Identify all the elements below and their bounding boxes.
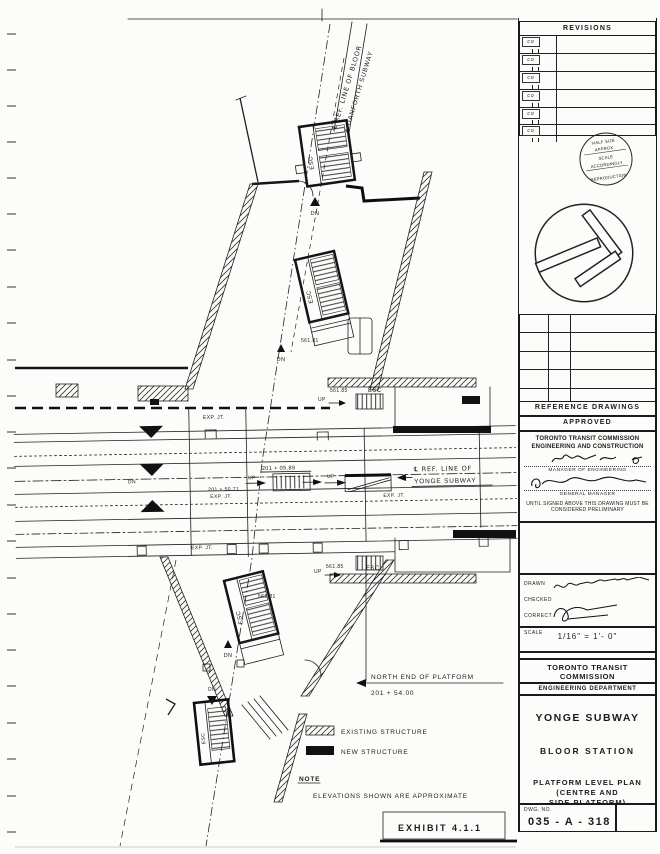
- stamp-line: REPRODUCTION: [590, 172, 627, 182]
- north-end-structures: 561.85 UP ESC: [318, 378, 491, 433]
- exp-jt-label: EXP. JT.: [383, 493, 405, 499]
- dwg-number: 035 - A - 318: [528, 816, 611, 828]
- note-label: NOTE: [299, 776, 320, 783]
- general-manager-role-label: GENERAL MANAGER: [520, 492, 655, 497]
- approved-header: APPROVED: [519, 416, 656, 431]
- dwg-no-label: DWG. NO.: [524, 807, 552, 813]
- reference-drawings-header: REFERENCE DRAWINGS: [519, 401, 656, 416]
- down-arrow-icon: [310, 197, 320, 206]
- legend-existing-swatch: [306, 726, 334, 735]
- esc-label: ESC: [366, 566, 380, 572]
- general-manager-signature: [524, 474, 654, 489]
- west-structures: EXP. JT.: [15, 368, 330, 421]
- north-end-label: NORTH END OF PLATFORM: [371, 674, 474, 681]
- elevation-label: 561.81: [258, 594, 276, 600]
- dwg-cell-divider: [615, 805, 617, 831]
- elevation-label: 561.81: [301, 338, 319, 344]
- spacer-box: [519, 652, 656, 659]
- revision-row: co: [520, 54, 655, 72]
- revision-mark: co: [522, 109, 540, 119]
- empty-box: [519, 522, 656, 574]
- drawing-sheet: ℄ REF. LINE OF BLOOR & DANFORTH SUBWAY E…: [0, 0, 660, 854]
- exp-jt-label: EXP. JT.: [191, 545, 213, 551]
- approved-disclaimer-line2: CONSIDERED PRELIMINARY: [520, 507, 655, 513]
- title-line-centre: (CENTRE AND: [520, 788, 655, 798]
- drawing-title-block: YONGE SUBWAY BLOOR STATION PLATFORM LEVE…: [519, 695, 656, 804]
- leader-arrow-icon: [356, 679, 366, 687]
- new-structure-wall: [453, 530, 516, 538]
- leader-arrow-icon: [397, 474, 406, 481]
- drawn-signature: [550, 577, 655, 592]
- title-line-station: BLOOR STATION: [520, 746, 655, 756]
- legend: EXISTING STRUCTURE NEW STRUCTURE NOTE EL…: [298, 726, 517, 841]
- revision-mark: co: [522, 91, 540, 101]
- approved-org-line2: ENGINEERING AND CONSTRUCTION: [520, 443, 655, 451]
- note-text: ELEVATIONS SHOWN ARE APPROXIMATE: [313, 793, 468, 800]
- title-line-plan: PLATFORM LEVEL PLAN: [520, 778, 655, 788]
- revision-row: co: [520, 36, 655, 54]
- south-end-structures: 561.85 UP ESC: [314, 530, 516, 583]
- elevation-label: 561.85: [330, 388, 348, 394]
- reference-rows: [519, 314, 656, 401]
- revision-mark: co: [522, 73, 540, 83]
- legend-existing-label: EXISTING STRUCTURE: [341, 729, 428, 736]
- yonge-ref-line-label: ℄ REF. LINE OF: [414, 464, 472, 473]
- escalator-top: ESC: [290, 119, 364, 188]
- down-arrow-icon: [224, 640, 232, 648]
- drawn-label: DRAWN: [524, 581, 545, 587]
- revision-row: co: [520, 108, 655, 126]
- dn-label: DN: [128, 479, 136, 485]
- station-chainage-label: 201 + 50.71: [208, 486, 239, 493]
- scale-block: SCALE 1/16" = 1'- 0": [519, 627, 656, 652]
- south-concourse-walls: [160, 557, 394, 802]
- train-direction-arrow: [140, 464, 164, 476]
- north-arrow: [531, 200, 637, 306]
- door-swing-arc: [299, 181, 313, 196]
- exp-jt-label: EXP. JT.: [210, 494, 232, 500]
- matchline-ticks: [7, 34, 16, 832]
- revision-mark: co: [522, 37, 540, 47]
- legend-new-label: NEW STRUCTURE: [341, 749, 408, 756]
- exp-jt-label: EXP. JT.: [203, 415, 225, 421]
- revision-row: co: [520, 72, 655, 90]
- scale-label: SCALE: [524, 630, 543, 636]
- station-chainage-label: 201 + 05.89: [262, 465, 296, 472]
- esc-label: ESC: [306, 289, 315, 304]
- revision-row: co: [520, 90, 655, 108]
- north-arrow-lower-arm: [575, 251, 621, 286]
- revisions-table: REVISIONS co co co co co co: [519, 21, 656, 136]
- revision-mark: co: [522, 126, 540, 136]
- manager-role-label: MANAGER OF ENGINEERING: [520, 468, 655, 473]
- manager-signature: [524, 452, 654, 465]
- approved-block: TORONTO TRANSIT COMMISSION ENGINEERING A…: [519, 431, 656, 522]
- stair: [356, 394, 383, 409]
- up-label: UP: [314, 569, 322, 575]
- correct-signature: [548, 597, 638, 623]
- reproduction-stamp: HALF SIZE APPROX. SCALE ACCORDINGLY REPR…: [577, 130, 635, 188]
- escalator-bottom: ESC: [194, 699, 234, 764]
- org-line2: COMMISSION: [520, 672, 655, 681]
- new-structure-wall: [346, 186, 420, 201]
- stair-treads: [242, 696, 288, 739]
- title-block: REVISIONS co co co co co co HALF SIZE AP…: [518, 18, 657, 832]
- exhibit-label: EXHIBIT 4.1.1: [398, 823, 482, 833]
- up-label: UP: [318, 397, 326, 403]
- department-block: ENGINEERING DEPARTMENT: [519, 683, 656, 695]
- escalator-concourse-south: ESC: [224, 571, 284, 664]
- escalator-in-platform: [345, 475, 391, 492]
- escalator-concourse-north: ESC: [295, 251, 354, 346]
- new-structure-wall: [393, 426, 491, 433]
- revision-mark: co: [522, 55, 540, 65]
- org-line1: TORONTO TRANSIT: [520, 663, 655, 672]
- up-label: UP: [327, 474, 335, 480]
- bloor-danforth-corridor: ℄ REF. LINE OF BLOOR & DANFORTH SUBWAY: [236, 22, 375, 182]
- esc-label: ESC: [200, 732, 207, 744]
- stamp-line: SCALE: [598, 154, 613, 161]
- yonge-subway-label: YONGE SUBWAY: [414, 477, 476, 485]
- dwg-number-block: DWG. NO. 035 - A - 318: [519, 804, 656, 832]
- drawn-checked-block: DRAWN CHECKED CORRECT: [519, 574, 656, 627]
- esc-label: ESC: [368, 388, 382, 394]
- legend-new-swatch: [306, 746, 334, 755]
- dn-label: DN: [311, 211, 320, 217]
- up-label: UP: [248, 475, 256, 481]
- title-line-subway: YONGE SUBWAY: [520, 712, 655, 724]
- upper-concourse-walls: [185, 172, 432, 390]
- top-landing: DN: [252, 181, 420, 217]
- dn-label: DN: [208, 687, 216, 693]
- down-arrow-icon: [277, 344, 285, 352]
- dn-label: DN: [224, 653, 233, 659]
- north-end-chainage: 201 + 54.00: [371, 690, 414, 697]
- organization-block: TORONTO TRANSIT COMMISSION: [519, 659, 656, 683]
- revisions-title: REVISIONS: [520, 22, 655, 36]
- elevation-label: 561.85: [326, 564, 344, 570]
- approved-org-line1: TORONTO TRANSIT COMMISSION: [520, 435, 655, 443]
- train-direction-arrow: [140, 500, 164, 512]
- plan-drawing: ℄ REF. LINE OF BLOOR & DANFORTH SUBWAY E…: [0, 0, 520, 854]
